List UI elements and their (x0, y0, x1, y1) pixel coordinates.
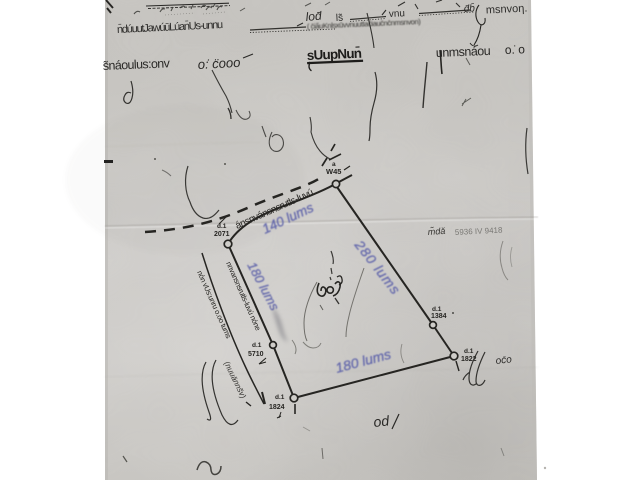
svg-text:m̃dă: m̃dă (427, 225, 445, 237)
svg-text:5710: 5710 (248, 351, 264, 358)
svg-text:d.1: d.1 (252, 342, 262, 349)
svg-text:d.1: d.1 (432, 306, 442, 313)
svg-text:o.̇ o: o.̇ o (505, 42, 526, 57)
svg-text:1824: 1824 (269, 404, 285, 411)
svg-text:msnvoη.: msnvoη. (486, 3, 528, 17)
svg-text:unmsnáou: unmsnáou (436, 44, 491, 60)
svg-text:s̃náoulus:onv: s̃náoulus:onv (103, 56, 171, 73)
svg-text:o:̇ c̈ooo: o:̇ c̈ooo (197, 55, 240, 72)
svg-text:2071: 2071 (214, 231, 230, 238)
svg-text:d.1: d.1 (464, 348, 474, 355)
svg-text:d̄b̄: d̄b̄ (463, 2, 475, 15)
svg-text:od: od (373, 412, 391, 430)
svg-text:oc̄o: oc̄o (495, 354, 513, 367)
svg-text:d.1: d.1 (217, 223, 227, 230)
svg-text:W45: W45 (326, 167, 341, 176)
svg-text:d.1: d.1 (275, 394, 285, 401)
svg-text:1384: 1384 (431, 313, 447, 320)
